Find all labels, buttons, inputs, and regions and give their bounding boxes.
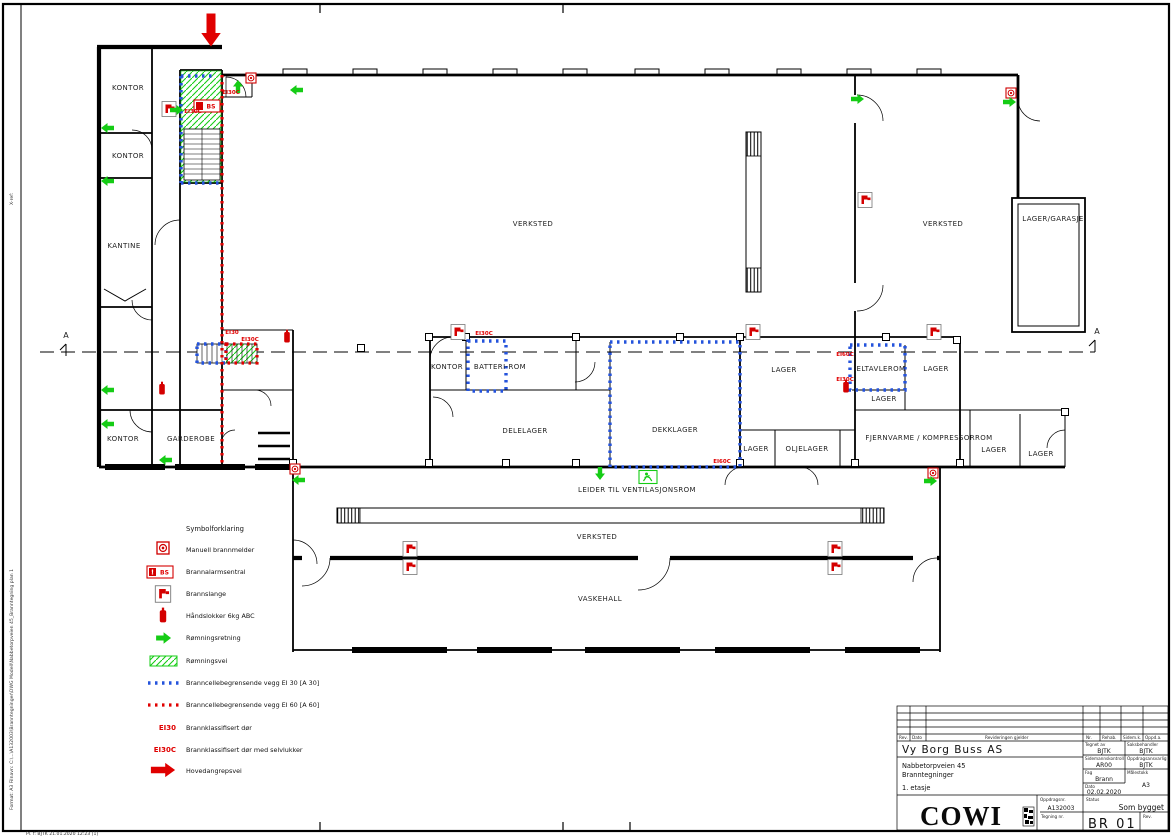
room-label-kontor-mid: KONTOR xyxy=(431,363,463,371)
svg-text:EI30C: EI30C xyxy=(241,337,259,343)
escape-direction-icon xyxy=(595,467,605,480)
escape-route-mid-stair xyxy=(197,344,257,363)
fire-hose-icon xyxy=(927,325,941,340)
project-address: Nabbetorpveien 45 xyxy=(902,762,965,770)
escape-direction-icon xyxy=(101,385,114,395)
room-label-dekklager: DEKKLAGER xyxy=(652,426,698,434)
svg-text:Fag: Fag xyxy=(1085,770,1093,775)
fire-hose-icon xyxy=(746,325,760,340)
fire-hose-icon xyxy=(403,560,417,575)
room-labels: KONTOR KONTOR KANTINE KONTOR GARDEROBE V… xyxy=(107,84,1084,603)
svg-text:Manuell brannmelder: Manuell brannmelder xyxy=(186,546,255,554)
label-leider: LEIDER TIL VENTILASJONSROM xyxy=(578,486,696,494)
escape-direction-icon xyxy=(101,123,114,133)
svg-text:BJTK: BJTK xyxy=(1139,762,1154,769)
fire-extinguisher-icon xyxy=(284,330,290,343)
status-value: Som bygget xyxy=(1119,803,1164,812)
svg-text:Tegnet av: Tegnet av xyxy=(1084,742,1106,747)
manual-call-point-icon xyxy=(1006,88,1016,98)
svg-text:Status: Status xyxy=(1086,797,1099,802)
fire-hose-icon xyxy=(155,586,170,603)
room-label-garderobe: GARDEROBE xyxy=(167,435,215,443)
fire-hose-icon xyxy=(828,542,842,557)
svg-text:Tegning nr.: Tegning nr. xyxy=(1040,814,1064,819)
room-label-vaskehall: VASKEHALL xyxy=(578,595,622,603)
legend-title: Symbolforklaring xyxy=(186,525,244,533)
svg-text:EI60C: EI60C xyxy=(713,459,731,465)
svg-text:BJTK: BJTK xyxy=(1139,748,1154,755)
svg-text:!: ! xyxy=(151,569,154,577)
escape-route-stairwell xyxy=(181,71,221,182)
svg-text:Branncellebegrensende vegg EI: Branncellebegrensende vegg EI 60 [A 60] xyxy=(186,701,319,709)
room-label-lager-1: LAGER xyxy=(771,366,796,374)
svg-text:EI30: EI30 xyxy=(225,330,239,336)
manual-call-point-icon xyxy=(928,468,938,478)
manual-call-point-icon xyxy=(290,464,300,474)
svg-text:Brannklassifisert dør med selv: Brannklassifisert dør med selvlukker xyxy=(186,746,303,754)
room-label-fjernvarme: FJERNVARME / KOMPRESSORROM xyxy=(865,434,992,442)
svg-text:Saksbehandler: Saksbehandler xyxy=(1127,742,1158,747)
svg-text:Nr.: Nr. xyxy=(1086,735,1092,740)
room-label-kontor-3: KONTOR xyxy=(107,435,139,443)
floor-plan-drawing: X-ref: Format: A3 Filnavn: C:\...\A13200… xyxy=(0,0,1173,837)
room-label-lager-3: LAGER xyxy=(923,365,948,373)
escape-direction-icon xyxy=(290,85,303,95)
room-label-kontor-1: KONTOR xyxy=(112,84,144,92)
svg-text:Rømningsretning: Rømningsretning xyxy=(186,634,241,642)
svg-text:Revideringen gjelder: Revideringen gjelder xyxy=(985,735,1029,740)
project-subject: Branntegninger xyxy=(902,771,954,779)
escape-route-icon xyxy=(150,656,177,666)
edge-stamp-xref: X-ref: xyxy=(9,192,15,205)
fire-hose-icon xyxy=(858,193,872,208)
svg-text:Rev.: Rev. xyxy=(899,735,908,740)
room-label-delelager: DELELAGER xyxy=(502,427,547,435)
fire-extinguisher-icon xyxy=(160,608,166,623)
section-marker-right: A xyxy=(1094,327,1100,336)
room-label-lager-6: LAGER xyxy=(1028,450,1053,458)
drawing-number: BR 01 xyxy=(1088,817,1137,832)
svg-text:Dato: Dato xyxy=(912,735,922,740)
svg-text:EI30C: EI30C xyxy=(475,331,493,337)
svg-text:Hovedangrepsvei: Hovedangrepsvei xyxy=(186,767,242,775)
room-label-lager-4: LAGER xyxy=(871,395,896,403)
manual-call-point-icon xyxy=(246,73,256,83)
escape-direction-icon xyxy=(101,419,114,429)
svg-text:EI30C: EI30C xyxy=(222,90,240,96)
fire-alarm-panel-icon: ! BS xyxy=(147,566,173,578)
fire-wall-ei60-lines xyxy=(222,75,257,467)
title-block: Rev. Dato Revideringen gjelder Nr. Rehab… xyxy=(897,706,1168,832)
room-label-verksted-strip: VERKSTED xyxy=(577,533,617,541)
svg-text:Rev.: Rev. xyxy=(1143,814,1152,819)
svg-text:Sidem.k.: Sidem.k. xyxy=(1123,735,1141,740)
svg-text:Brannklassifisert dør: Brannklassifisert dør xyxy=(186,724,252,732)
columns xyxy=(290,334,1069,467)
section-marker-left: A xyxy=(63,331,69,340)
barcode-icon xyxy=(1023,807,1034,826)
fire-extinguisher-icon xyxy=(159,382,165,395)
svg-text:Sidemannskontroll: Sidemannskontroll xyxy=(1085,756,1124,761)
symbols-layer: BS xyxy=(101,14,1016,575)
drawing-sheet: X-ref: Format: A3 Filnavn: C:\...\A13200… xyxy=(0,0,1173,837)
bottom-plot-stamp: Pl. f: BJTK 21.01.2020 12:23 [1] xyxy=(26,831,98,837)
cowi-logo: COWI xyxy=(920,801,1002,831)
svg-text:02.02.2020: 02.02.2020 xyxy=(1087,789,1122,796)
svg-text:BS: BS xyxy=(207,103,216,110)
room-label-kantine: KANTINE xyxy=(107,242,140,250)
svg-text:Håndslokker 6kg ABC: Håndslokker 6kg ABC xyxy=(186,611,255,620)
room-label-lager-2: LAGER xyxy=(743,445,768,453)
svg-text:BS: BS xyxy=(160,570,169,577)
svg-text:Oppd.a.: Oppd.a. xyxy=(1145,735,1162,740)
escape-route-sign-icon xyxy=(639,471,657,484)
svg-text:EI30C: EI30C xyxy=(184,109,202,115)
room-label-verksted-main: VERKSTED xyxy=(513,220,553,228)
sheet-frame: X-ref: Format: A3 Filnavn: C:\...\A13200… xyxy=(3,4,1169,837)
svg-text:Oppdragsnr.: Oppdragsnr. xyxy=(1040,797,1066,802)
svg-text:AR00: AR00 xyxy=(1096,762,1112,769)
fire-door-key: EI30 xyxy=(159,724,176,732)
svg-text:A3: A3 xyxy=(1142,782,1150,789)
svg-text:Oppdragsansvarlig: Oppdragsansvarlig xyxy=(1127,756,1167,761)
svg-text:Rømningsvei: Rømningsvei xyxy=(186,657,228,665)
svg-text:Målestokk: Målestokk xyxy=(1127,770,1149,775)
svg-text:Brannalarmsentral: Brannalarmsentral xyxy=(186,568,246,576)
fire-wall-ei30-lines xyxy=(181,76,905,467)
svg-text:EI30C: EI30C xyxy=(836,377,854,383)
escape-direction-icon xyxy=(156,632,171,644)
svg-text:EI60C: EI60C xyxy=(836,352,854,358)
room-label-oljelager: OLJELAGER xyxy=(786,445,829,453)
svg-text:Branncellebegrensende vegg EI: Branncellebegrensende vegg EI 30 [A 30] xyxy=(186,679,319,687)
room-label-eltavlerom: ELTAVLEROM xyxy=(857,365,906,373)
svg-text:Brannslange: Brannslange xyxy=(186,590,226,598)
room-label-batterirom: BATTERI-ROM xyxy=(474,363,526,371)
project-number: A132003 xyxy=(1047,805,1074,812)
project-floor: 1. etasje xyxy=(902,784,930,792)
fire-hose-icon xyxy=(451,325,465,340)
room-label-lager-5: LAGER xyxy=(981,446,1006,454)
main-attack-route-icon xyxy=(151,763,175,777)
client-name: Vy Borg Buss AS xyxy=(902,744,1003,756)
main-attack-route-icon xyxy=(201,14,221,47)
room-label-kontor-2: KONTOR xyxy=(112,152,144,160)
edge-stamp-filename: Format: A3 Filnavn: C:\...\A132003\Brann… xyxy=(9,569,15,810)
manual-call-point-icon xyxy=(157,542,169,554)
fire-hose-icon xyxy=(403,542,417,557)
fire-door-closer-key: EI30C xyxy=(154,746,176,754)
room-label-verksted-right: VERKSTED xyxy=(923,220,963,228)
fire-hose-icon xyxy=(828,560,842,575)
svg-text:BJTK: BJTK xyxy=(1097,748,1112,755)
escape-direction-icon xyxy=(292,475,305,485)
room-label-lager-garasje: LAGER/GARASJE xyxy=(1022,215,1084,223)
doors-layer xyxy=(130,77,1065,590)
svg-text:Rehab.: Rehab. xyxy=(1102,735,1117,740)
svg-text:Brann: Brann xyxy=(1095,776,1113,783)
escape-direction-icon xyxy=(159,455,172,465)
